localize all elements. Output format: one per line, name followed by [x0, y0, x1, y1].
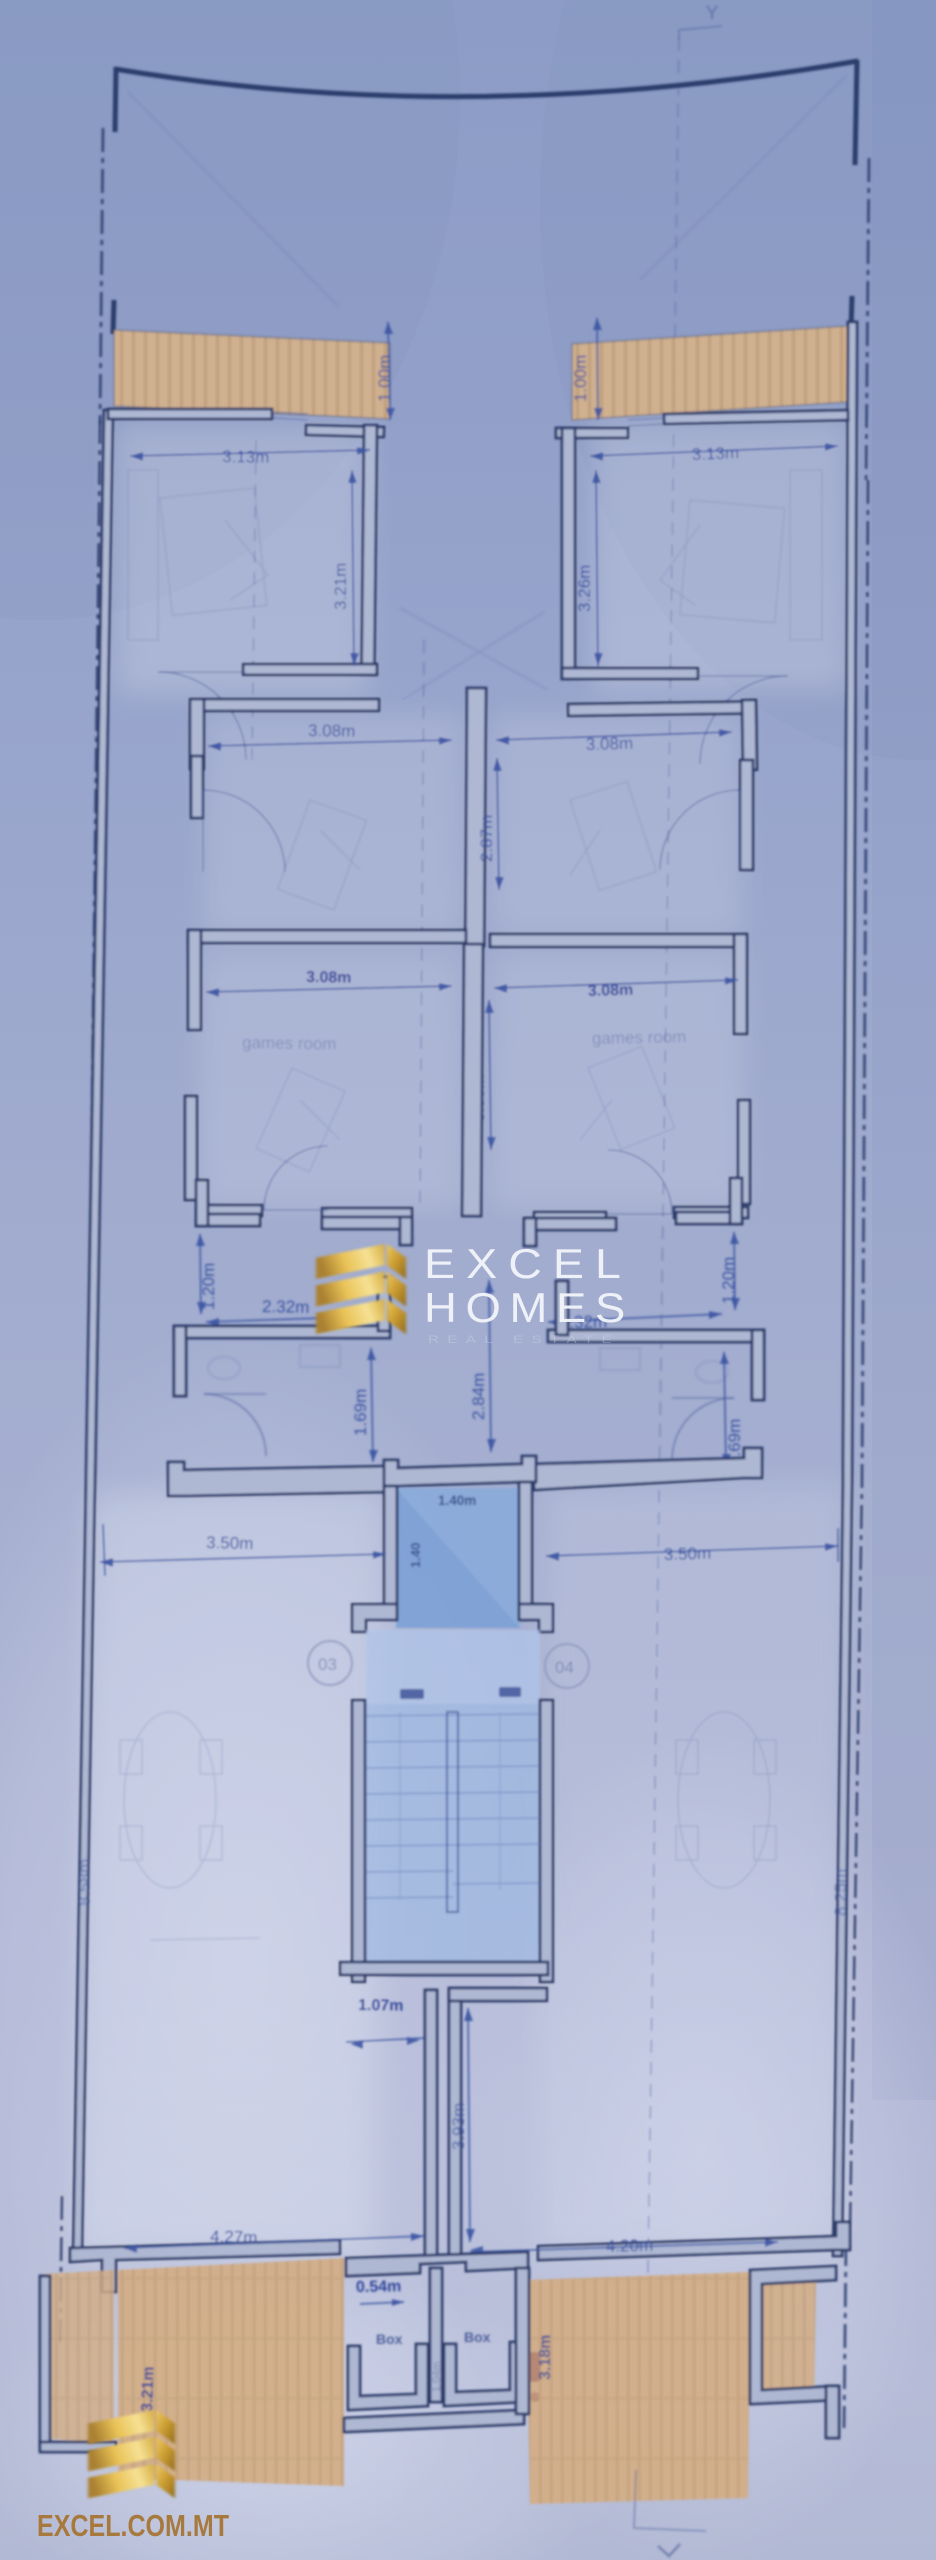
svg-text:Y: Y: [706, 3, 718, 23]
svg-text:3.50m: 3.50m: [664, 1544, 712, 1564]
svg-text:3.13m: 3.13m: [691, 443, 739, 464]
svg-text:1.20m: 1.20m: [199, 1263, 218, 1310]
svg-text:04: 04: [555, 1658, 574, 1677]
svg-text:8.25m: 8.25m: [831, 1869, 850, 1916]
svg-text:3.08m: 3.08m: [588, 982, 634, 1000]
svg-text:4.27m: 4.27m: [210, 2227, 258, 2247]
svg-text:4.20m: 4.20m: [606, 2236, 654, 2256]
svg-text:3.08m: 3.08m: [306, 969, 352, 987]
svg-text:1.00m: 1.00m: [375, 355, 394, 402]
svg-text:Box: Box: [376, 2331, 403, 2347]
svg-text:2.84m: 2.84m: [469, 1373, 488, 1420]
svg-text:3.08m: 3.08m: [586, 734, 634, 754]
svg-text:1.40: 1.40: [408, 1543, 423, 1568]
svg-text:EXCEL: EXCEL: [424, 1240, 632, 1287]
svg-text:1.40m: 1.40m: [438, 1493, 476, 1508]
svg-text:0.54m: 0.54m: [356, 2278, 402, 2296]
svg-text:3.26m: 3.26m: [575, 565, 594, 612]
svg-text:1.04m: 1.04m: [431, 2361, 443, 2392]
svg-text:Box: Box: [464, 2329, 491, 2345]
svg-text:games room: games room: [592, 1027, 687, 1048]
svg-text:3.13m: 3.13m: [222, 447, 270, 467]
svg-text:1.20m: 1.20m: [719, 1257, 738, 1304]
svg-text:1.00m: 1.00m: [571, 355, 590, 402]
svg-text:3.93m: 3.93m: [449, 2103, 468, 2150]
svg-text:REAL ESTATE: REAL ESTATE: [428, 1334, 620, 1346]
svg-text:3.21m: 3.21m: [139, 2366, 158, 2412]
svg-text:2.32m: 2.32m: [262, 1297, 310, 1317]
svg-text:EXCEL.COM.MT: EXCEL.COM.MT: [37, 2508, 229, 2543]
svg-text:1.69m: 1.69m: [351, 1389, 370, 1436]
svg-text:1.07m: 1.07m: [358, 1997, 404, 2015]
svg-text:HOMES: HOMES: [424, 1284, 634, 1331]
svg-text:games room: games room: [242, 1033, 337, 1054]
svg-text:03: 03: [318, 1655, 337, 1674]
svg-text:2.87m: 2.87m: [477, 815, 496, 862]
svg-text:3.50m: 3.50m: [206, 1533, 254, 1553]
svg-text:3.08m: 3.08m: [308, 721, 356, 741]
svg-text:8.58m: 8.58m: [75, 1859, 94, 1906]
svg-text:3.21m: 3.21m: [331, 563, 350, 610]
